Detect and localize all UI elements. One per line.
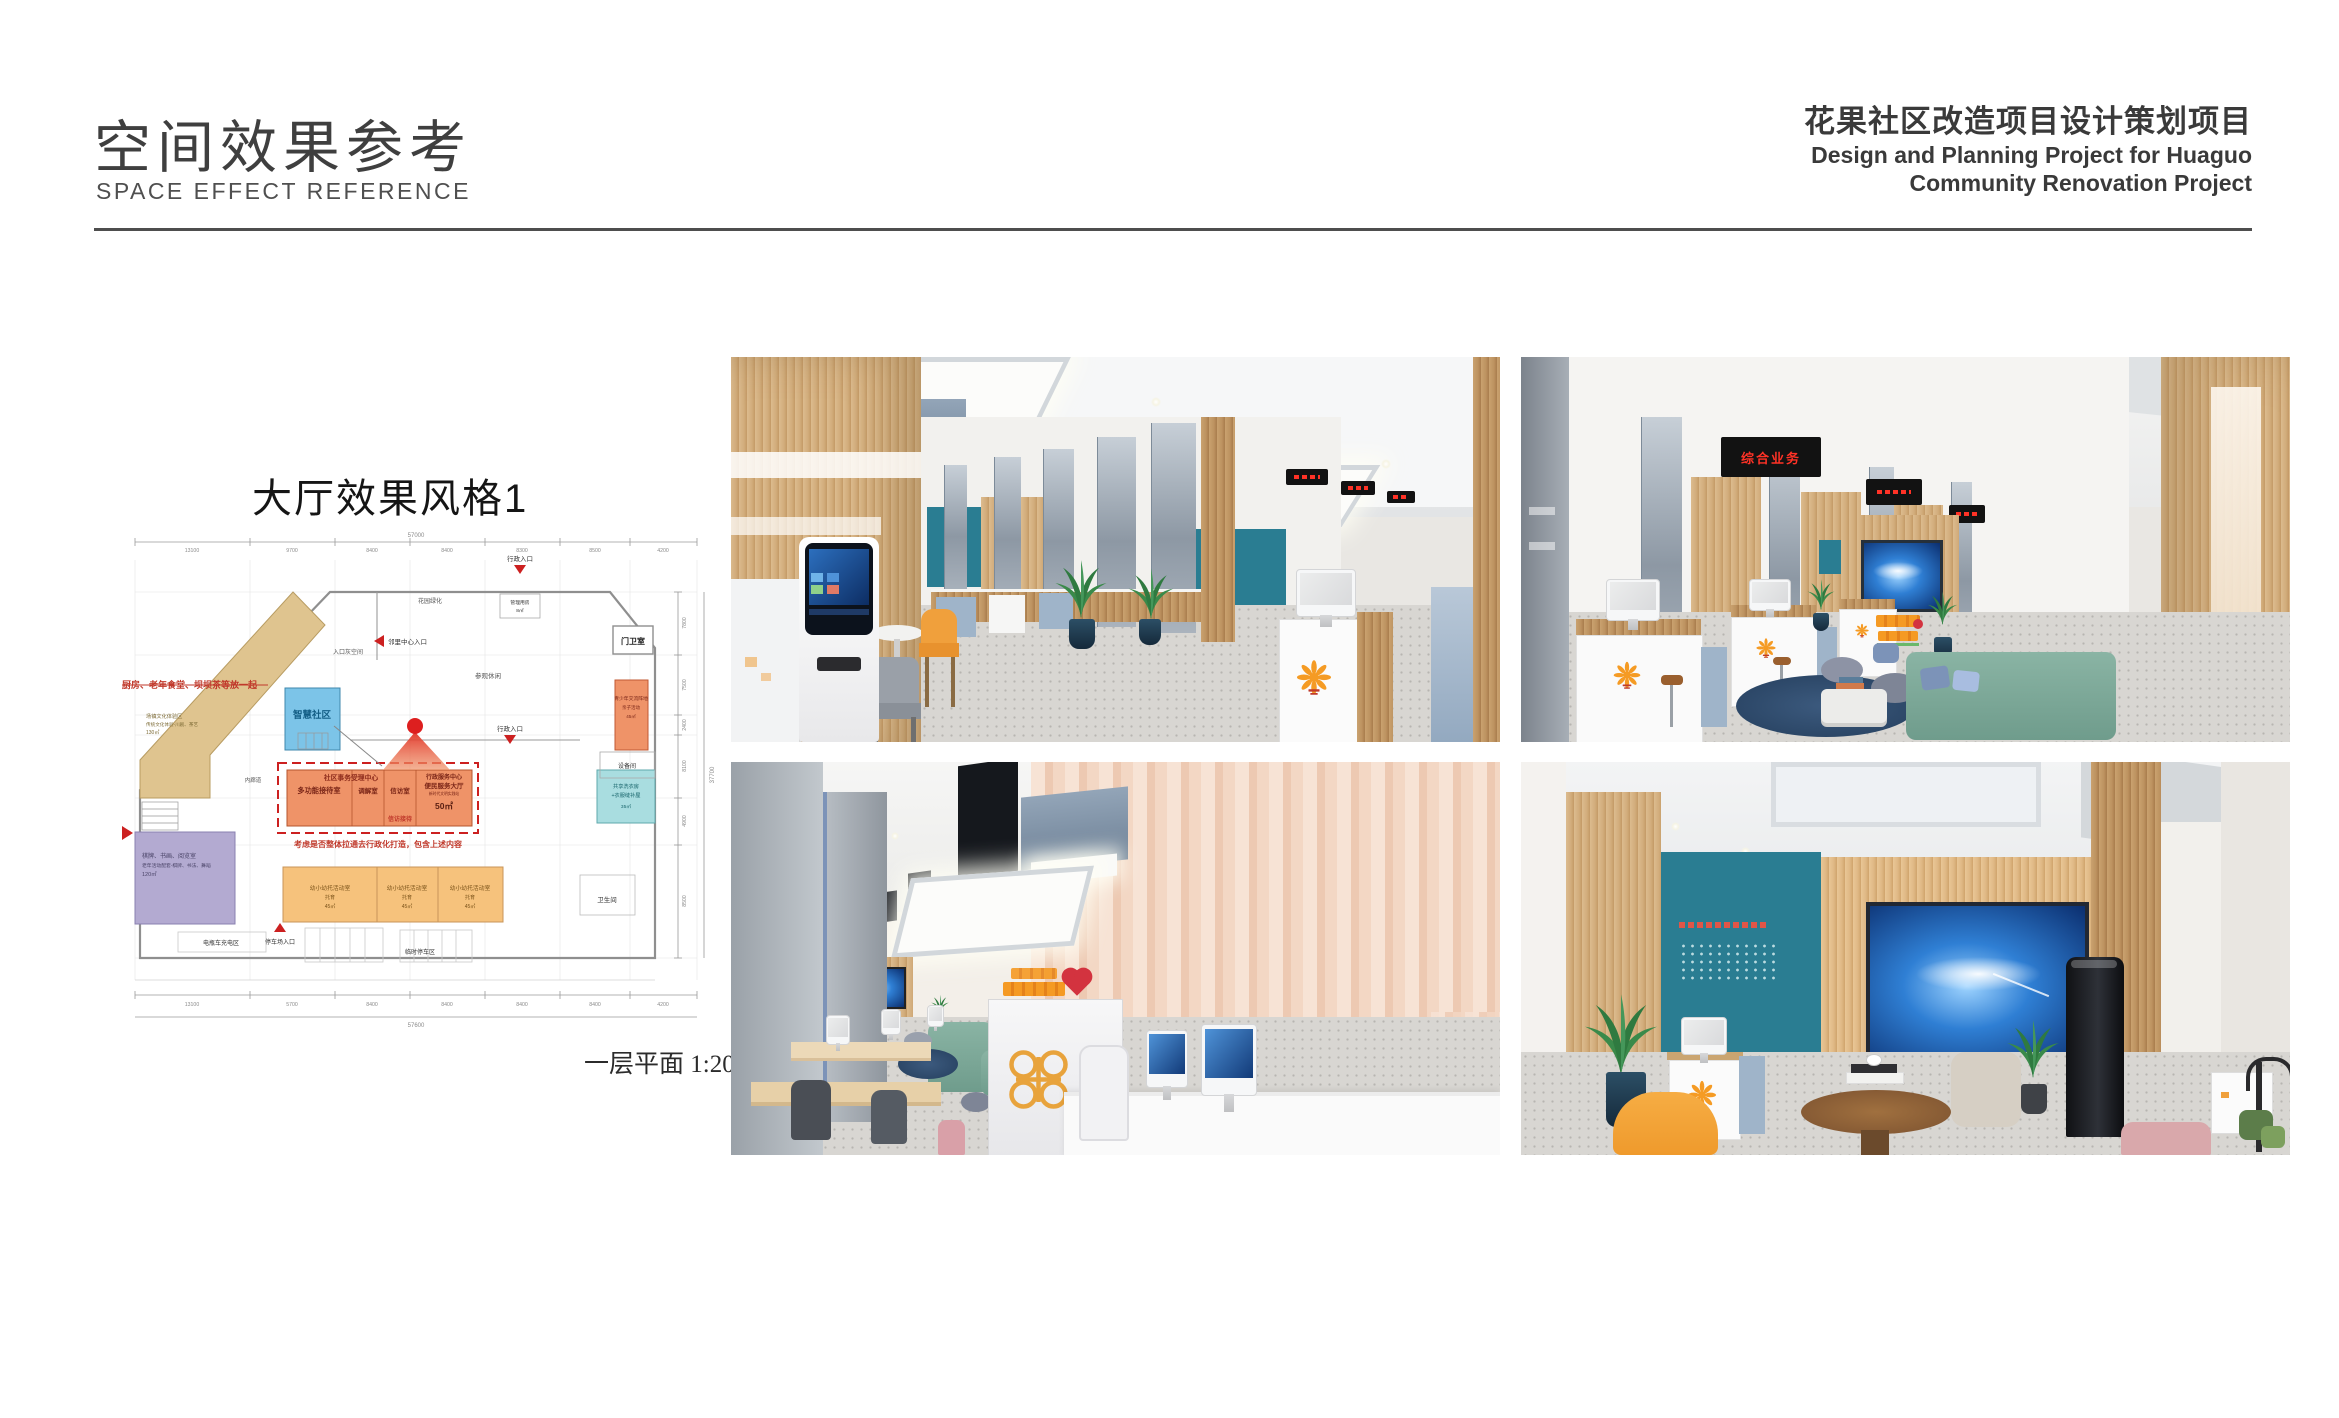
green-sofa [1906, 652, 2116, 740]
stool-seat [1773, 657, 1791, 665]
kiosk-tile [811, 585, 823, 594]
label-mediation: 调解室 [358, 786, 378, 795]
skylight-panel [1771, 762, 2041, 827]
label-neighborhood-entrance: 邻里中心入口 [388, 637, 427, 646]
plant-pot [1813, 613, 1829, 631]
render-office-view [731, 762, 1500, 1155]
label-culture-1: 场镇文化体验区 [146, 712, 182, 720]
render-hall-view-2: 综合业务 [1521, 357, 2290, 742]
spotlight [1381, 459, 1391, 469]
wall-dot-pattern [1679, 942, 1779, 984]
render-lounge-view [1521, 762, 2290, 1155]
label-smart-community: 智慧社区 [293, 709, 332, 721]
project-title-cn: 花果社区改造项目设计策划项目 [1492, 96, 2252, 141]
dim-label: 13100 [185, 1002, 200, 1008]
pillar-signage [1529, 507, 1555, 515]
stool-cube [1873, 643, 1899, 663]
chair-leg [911, 717, 916, 742]
chair-leg [951, 657, 955, 707]
page-title: 空间效果参考 [94, 102, 472, 184]
label-culture-2: 传统文化体验-川剧、茶艺 [146, 721, 198, 728]
label-elderly-2: 老年活动配套-棋牌、书法、舞蹈 [142, 862, 211, 869]
chair-leg [925, 657, 929, 707]
decorative-3d-sign [1003, 982, 1065, 996]
round-coffee-table [1801, 1090, 1951, 1134]
book [1836, 683, 1864, 689]
led-sign-text: 综合业务 [1741, 448, 1801, 467]
project-title-en-line1: Design and Planning Project for Huaguo [1492, 141, 2252, 169]
dim-label: 8400 [589, 1002, 601, 1008]
stool-leg [1670, 685, 1673, 727]
wall-ledge [731, 452, 921, 478]
west-entrance-arrow-icon [122, 826, 133, 840]
white-office-chair [1079, 1045, 1129, 1141]
dim-top-total: 57000 [408, 533, 425, 539]
tower-highlight [2071, 960, 2117, 968]
dim-label: 7500 [682, 679, 688, 691]
label-youth-area: 45㎡ [626, 713, 636, 719]
label-elderly-area: 120㎡ [142, 870, 157, 878]
coffee-cup [1866, 1054, 1882, 1066]
dim-label: 8400 [366, 548, 378, 554]
dim-label: 2400 [682, 719, 688, 731]
room-toilet [580, 875, 635, 915]
label-parking-entrance: 停车场入口 [265, 938, 295, 946]
dim-bottom-total: 57600 [408, 1023, 425, 1029]
label-petition: 信访室 [390, 786, 410, 795]
imac-computer [1296, 569, 1356, 617]
ottoman [961, 1092, 991, 1112]
label-childcare-1: 幼小幼托活动室 [450, 884, 491, 892]
kiosk-tile [811, 573, 823, 582]
pillow [1920, 665, 1951, 691]
imac-computer [826, 1015, 850, 1045]
decorative-3d-sign [1878, 631, 1918, 641]
label-management-area: 8㎡ [516, 607, 524, 614]
label-admin-entrance: 行政入口 [497, 724, 523, 733]
plant-icon [1049, 547, 1113, 627]
label-admin-2: 便民服务大厅 [425, 781, 465, 790]
label-childcare-area: 45㎡ [325, 903, 336, 910]
label-childcare-1: 幼小幼托活动室 [387, 884, 428, 892]
dim-right-total: 37700 [710, 766, 716, 783]
label-equipment: 设备间 [618, 762, 636, 770]
service-led-sign [1866, 479, 1922, 505]
label-admin-1: 行政服务中心 [425, 773, 462, 781]
counter-wood-top [1576, 619, 1701, 635]
pink-chair [938, 1120, 965, 1155]
yellow-tub-chair [1613, 1092, 1718, 1155]
label-childcare-sub: 托育 [402, 894, 412, 901]
cabinet [731, 579, 801, 742]
kiosk-taskbar [809, 609, 869, 615]
neighborhood-entrance-arrow-icon [374, 635, 384, 647]
plan-section-title: 大厅效果风格1 [252, 466, 528, 524]
label-laundry-2: +衣服缝补屋 [612, 791, 641, 799]
office-desk [791, 1042, 931, 1061]
label-childcare-area: 45㎡ [465, 903, 476, 910]
dim-label: 8100 [682, 760, 688, 772]
dim-label: 8400 [516, 1002, 528, 1008]
label-youth-1: 青少年交流阵地 [614, 695, 648, 702]
decorative-heart-dot [1913, 619, 1923, 629]
label-leisure: 参观休闲 [475, 671, 501, 680]
dim-label: 7800 [682, 617, 688, 629]
wall-ledge [731, 517, 881, 535]
counter-wood-top [1839, 599, 1895, 609]
coffee-table [1821, 689, 1887, 723]
orange-chair-seat [919, 643, 959, 657]
label-management: 管理用房 [510, 599, 529, 606]
imac-computer [881, 1009, 901, 1035]
imac-computer [1146, 1030, 1188, 1088]
pillar-signage [1529, 542, 1555, 550]
note-integration: 考虑是否整体拉通去行政化打造，包含上述内容 [294, 839, 462, 849]
sun-logo-icon [1609, 657, 1645, 699]
counter-front-panel [989, 595, 1025, 633]
label-acceptance-center: 社区事务受理中心 [323, 773, 379, 782]
label-admin-3: 新时代文明实践站 [429, 791, 460, 796]
wood-pillar [1201, 417, 1235, 642]
label-garden: 花园绿化 [418, 597, 442, 605]
label-laundry-area: 35㎡ [621, 803, 631, 810]
slide: 空间效果参考 SPACE EFFECT REFERENCE 花果社区改造项目设计… [0, 0, 2339, 1418]
counter-wood-side [1357, 612, 1393, 742]
green-bag [2261, 1126, 2285, 1148]
dim-label: 4900 [682, 815, 688, 827]
counter-divider-pillar [994, 457, 1021, 607]
sun-logo-icon [1291, 655, 1337, 707]
teal-wall-panel [1819, 540, 1841, 574]
plant-icon [1924, 570, 1961, 644]
imac-computer [1606, 579, 1660, 621]
plant-pot [1069, 619, 1095, 649]
pillar [827, 792, 887, 1122]
spotlight [1671, 822, 1680, 831]
floor-plan: 57000 13100 9700 8400 8400 8300 8500 420… [120, 530, 720, 1035]
screen-glow [1873, 562, 1923, 580]
dim-label: 8400 [366, 1002, 378, 1008]
cabinet-print [745, 657, 757, 667]
desk-side-panel [1739, 1056, 1765, 1134]
service-led-sign: 综合业务 [1721, 437, 1821, 477]
focus-dot [407, 718, 423, 734]
label-childcare-sub: 托育 [465, 894, 475, 901]
imac-computer [1201, 1024, 1257, 1096]
page-subtitle: SPACE EFFECT REFERENCE [96, 178, 471, 205]
label-ev-charging: 电瓶车充电区 [203, 939, 239, 947]
sun-logo-icon [1853, 621, 1871, 643]
dim-label: 4200 [657, 1002, 669, 1008]
label-guard: 门卫室 [621, 636, 645, 646]
label-toilet: 卫生间 [597, 895, 617, 904]
room-elderly [135, 832, 235, 924]
label-youth-2: 亲子活动 [622, 704, 640, 711]
counter-divider-pillar [944, 465, 967, 595]
label-gray-space: 入口灰空间 [333, 648, 363, 656]
queue-led-sign [1387, 491, 1415, 503]
pink-chair [2121, 1122, 2211, 1155]
spotlight [1151, 397, 1161, 407]
plant-icon [1123, 557, 1179, 627]
wood-wall-edge [1473, 357, 1500, 742]
spotlight [891, 832, 899, 840]
dim-label: 9700 [286, 548, 298, 554]
office-chair [791, 1080, 831, 1140]
book [1839, 677, 1863, 683]
parking-entrance-arrow-icon [274, 923, 286, 932]
plant-pot [2021, 1084, 2047, 1114]
queue-led-sign [1341, 481, 1375, 495]
label-admin-area: 50㎡ [435, 801, 453, 811]
kiosk-printer-slot [817, 657, 861, 671]
label-inner-corridor: 内廊道 [245, 776, 262, 784]
plant-pot [1139, 619, 1161, 645]
room-management [500, 594, 540, 618]
label-petition-reception: 信访接待 [388, 815, 412, 823]
wall-title-text [1679, 922, 1769, 928]
table-base [1861, 1130, 1889, 1155]
label-laundry-1: 共享洗衣房 [613, 782, 639, 790]
counter-side-panel [1701, 647, 1727, 727]
beige-chair [1951, 1052, 2021, 1127]
dim-label: 8500 [682, 895, 688, 907]
imac-computer [1681, 1017, 1727, 1055]
focus-cone [383, 732, 450, 770]
plant-icon [1804, 570, 1838, 617]
black-kiosk-tower [2066, 957, 2124, 1137]
header-divider [94, 228, 2252, 231]
dim-label: 8500 [589, 548, 601, 554]
imac-computer [1749, 579, 1791, 611]
label-culture-area: 130㎡ [146, 729, 159, 736]
kiosk-tile [827, 573, 839, 582]
dim-label: 4200 [657, 548, 669, 554]
stool-seat [1661, 675, 1683, 685]
suspended-light-panel [891, 866, 1094, 959]
dim-label: 8300 [516, 548, 528, 554]
book [1846, 1072, 1904, 1084]
queue-led-sign [1286, 469, 1328, 485]
label-multifunction: 多功能接待室 [297, 786, 340, 795]
label-childcare-1: 幼小幼托活动室 [310, 884, 351, 892]
cabinet-print [761, 673, 771, 681]
kiosk-tile [827, 585, 839, 594]
dim-label: 13100 [185, 548, 200, 554]
luggage-cart-handle [2246, 1057, 2290, 1091]
label-admin-entrance-top: 行政入口 [507, 554, 533, 563]
label-temp-parking: 临时停车区 [405, 948, 435, 956]
project-title-en-line2: Community Renovation Project [1492, 169, 2252, 197]
office-chair [871, 1090, 907, 1144]
admin-entrance-top-arrow-icon [514, 565, 526, 574]
project-title-block: 花果社区改造项目设计策划项目 Design and Planning Proje… [1492, 96, 2252, 197]
label-childcare-sub: 托育 [325, 894, 335, 901]
imac-computer [927, 1005, 944, 1027]
hanging-tv-screen [958, 762, 1018, 879]
dim-label: 8400 [441, 1002, 453, 1008]
cabinet-dot [2221, 1092, 2229, 1098]
plan-caption: 一层平面 1:200 [584, 1044, 747, 1080]
white-desk [1064, 1092, 1500, 1155]
label-childcare-area: 45㎡ [402, 903, 413, 910]
dim-label: 5700 [286, 1002, 298, 1008]
label-elderly-1: 棋牌、书画、阅览室 [142, 852, 196, 860]
pillow [1952, 670, 1980, 693]
render-hall-view-1 [731, 357, 1500, 742]
decorative-3d-sign [1011, 968, 1057, 979]
dim-label: 8400 [441, 548, 453, 554]
office-desk [751, 1082, 941, 1106]
